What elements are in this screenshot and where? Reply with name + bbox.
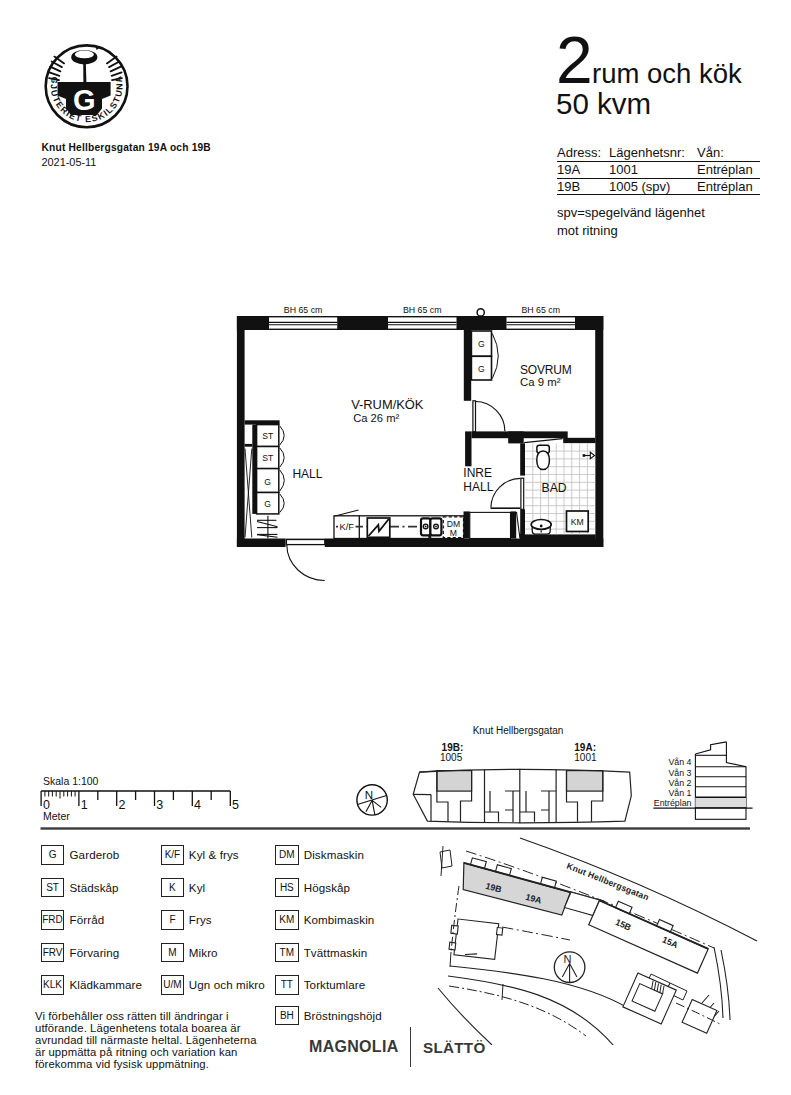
svg-text:N: N — [564, 953, 572, 965]
